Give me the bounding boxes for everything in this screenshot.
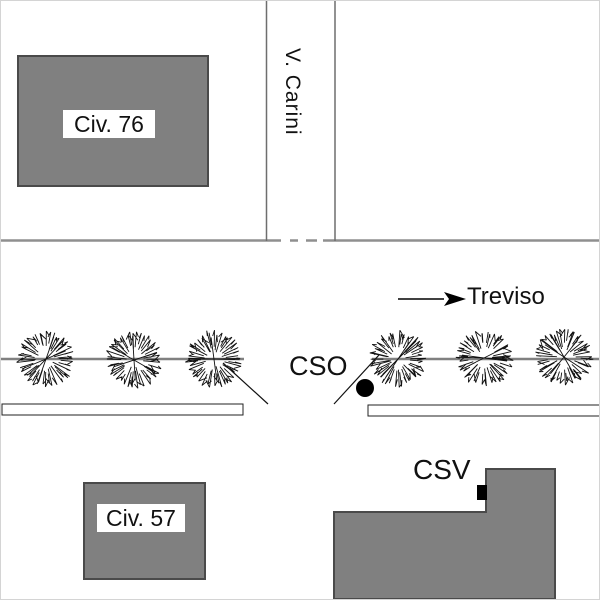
building-l-footprint xyxy=(334,469,555,599)
cso-point-label: CSO xyxy=(289,353,348,380)
building-57-label: Civ. 57 xyxy=(97,504,185,532)
tree-symbol xyxy=(185,330,241,387)
site-plan: Civ. 76 Civ. 57 V. Carini CSO Treviso CS… xyxy=(0,0,600,600)
csv-point-label: CSV xyxy=(413,456,471,484)
building-76-label: Civ. 76 xyxy=(63,110,155,138)
street-name-label: V. Carini xyxy=(282,48,303,136)
survey-point-dot xyxy=(356,379,374,397)
door-marker xyxy=(477,485,487,500)
direction-arrow-head xyxy=(444,292,466,306)
direction-treviso-label: Treviso xyxy=(467,285,545,309)
sidewalk-rect xyxy=(368,405,600,416)
sidewalk-rect xyxy=(2,404,243,415)
tree-symbol xyxy=(536,329,594,385)
tree-symbol xyxy=(370,330,426,387)
